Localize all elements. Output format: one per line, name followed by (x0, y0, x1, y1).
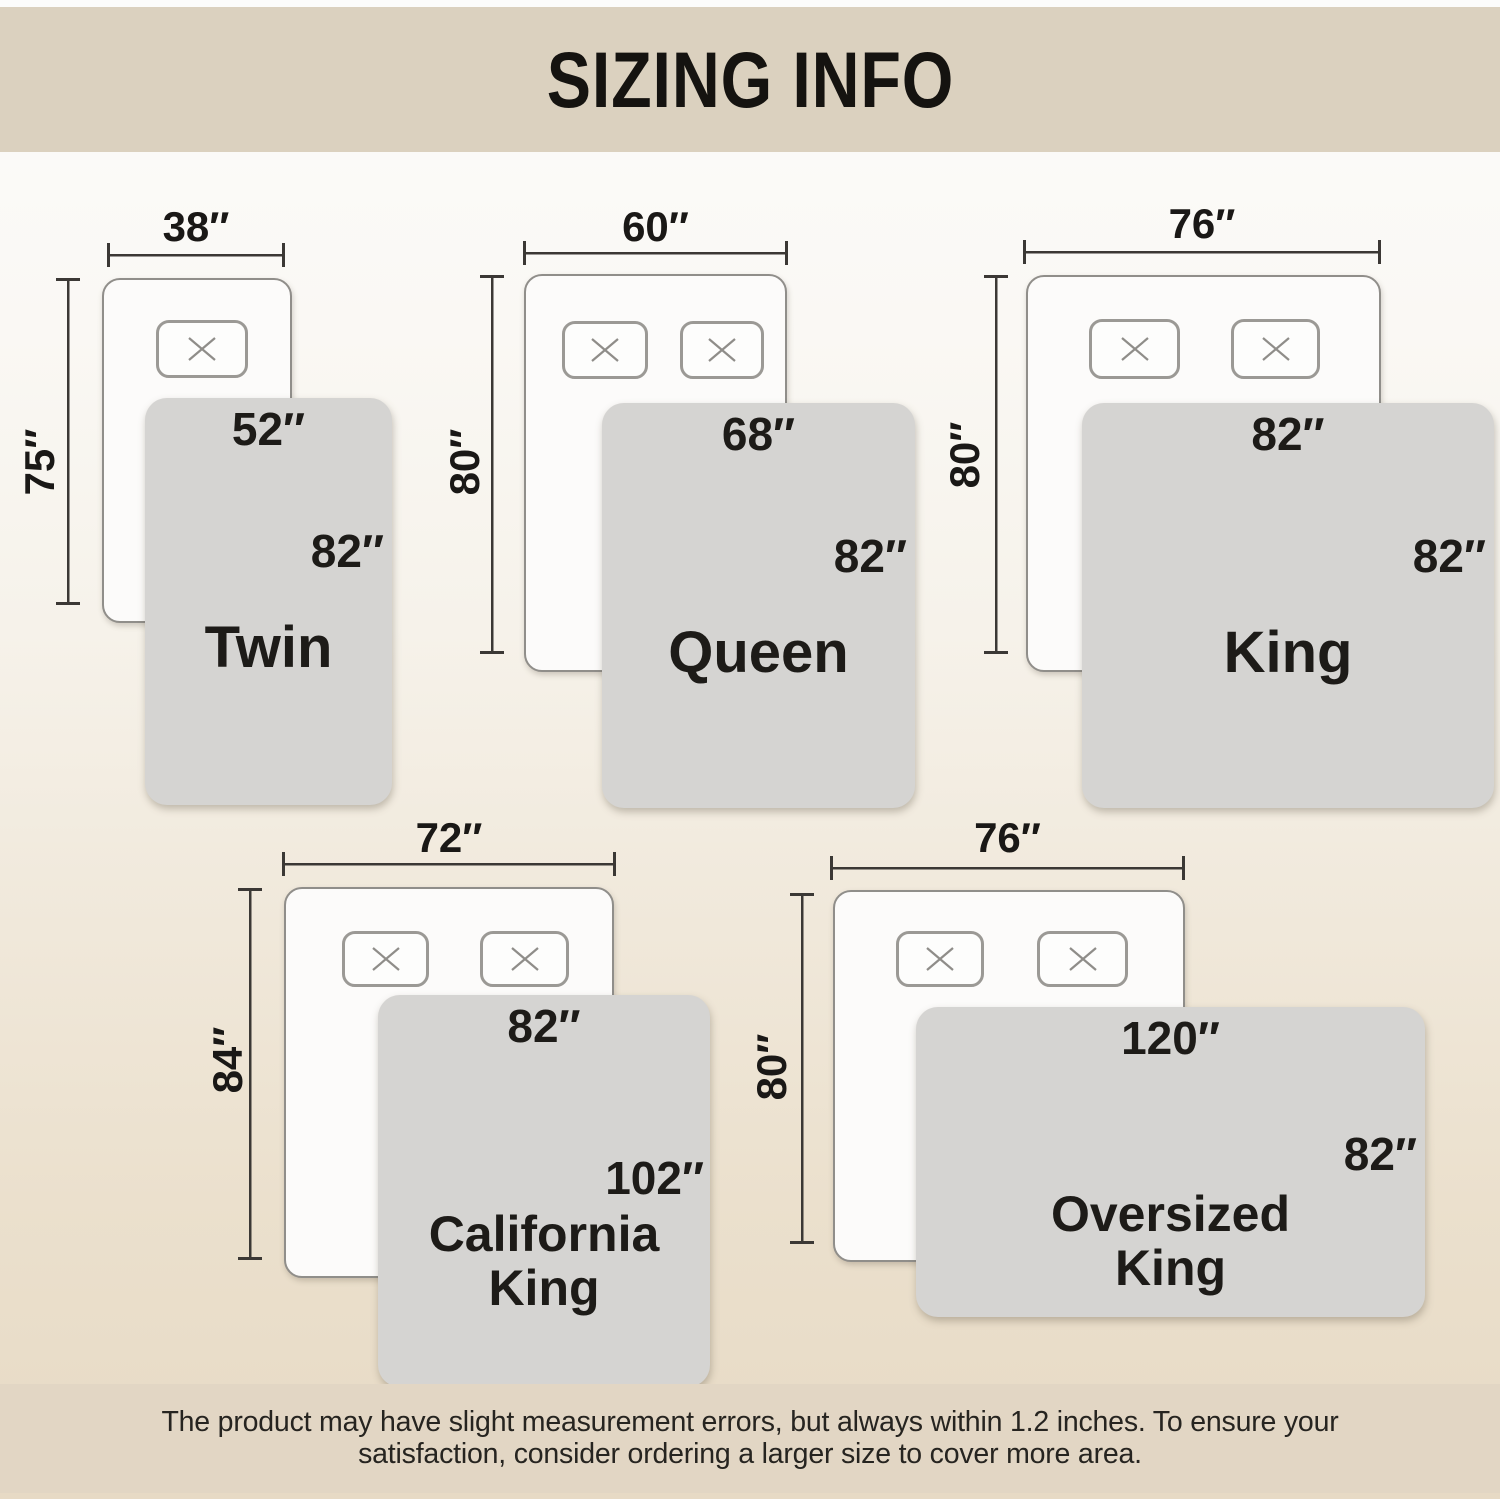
footer-note: The product may have slight measurement … (0, 1384, 1500, 1493)
blanket-width-label: 120″ (916, 1011, 1425, 1065)
pillow-x-icon (1253, 331, 1299, 367)
mattress-length-label: 80″ (441, 392, 485, 532)
pillow (156, 320, 248, 378)
blanket-width-label: 52″ (145, 402, 392, 456)
pillow-x-icon (179, 331, 225, 367)
blanket: 82″ 82″ King (1082, 403, 1494, 808)
pillow-x-icon (917, 941, 963, 977)
blanket-length-label: 82″ (1344, 1127, 1417, 1181)
blanket: 68″ 82″ Queen (602, 403, 915, 808)
blanket: 52″ 82″ Twin (145, 398, 392, 805)
pillow (1231, 319, 1320, 379)
blanket-size-name: California King (378, 1207, 710, 1315)
pillow-x-icon (1112, 331, 1158, 367)
blanket: 82″ 102″ California King (378, 995, 710, 1387)
pillow-x-icon (1060, 941, 1106, 977)
blanket-size-name: King (1082, 623, 1494, 683)
pillow-x-icon (699, 332, 745, 368)
width-dimension-line (830, 856, 1185, 880)
width-dimension-line (107, 243, 285, 267)
width-dimension-line (282, 852, 616, 876)
pillow (562, 321, 648, 379)
blanket: 120″ 82″ Oversized King (916, 1007, 1425, 1317)
mattress-length-label: 75″ (16, 392, 60, 532)
width-dimension-line (523, 241, 788, 265)
blanket-width-label: 82″ (1082, 407, 1494, 461)
blanket-size-name: Twin (145, 618, 392, 678)
page-title: SIZING INFO (546, 34, 953, 126)
pillow-x-icon (363, 941, 409, 977)
mattress-length-label: 80″ (748, 997, 792, 1137)
blanket-length-label: 82″ (311, 524, 384, 578)
blanket-length-label: 82″ (1413, 529, 1486, 583)
pillow (1037, 931, 1128, 987)
blanket-length-label: 102″ (605, 1151, 704, 1205)
blanket-length-label: 82″ (834, 529, 907, 583)
blanket-size-name: Oversized King (1001, 1187, 1341, 1295)
pillow (680, 321, 764, 379)
mattress-length-label: 84″ (204, 990, 248, 1130)
title-banner: SIZING INFO (0, 7, 1500, 152)
pillow (480, 931, 569, 987)
blanket-width-label: 68″ (602, 407, 915, 461)
width-dimension-line (1023, 240, 1381, 264)
mattress-length-label: 80″ (941, 385, 985, 525)
pillow (896, 931, 984, 987)
sizing-info-page: SIZING INFO 38″ 75″ 52″ 82″ Twin 60″ 80″ (0, 0, 1500, 1499)
pillow (1089, 319, 1180, 379)
footer-note-line: The product may have slight measurement … (161, 1407, 1338, 1439)
footer-note-line: satisfaction, consider ordering a larger… (358, 1439, 1142, 1471)
blanket-size-name: Queen (602, 623, 915, 683)
pillow (342, 931, 429, 987)
pillow-x-icon (582, 332, 628, 368)
pillow-x-icon (502, 941, 548, 977)
blanket-width-label: 82″ (378, 999, 710, 1053)
